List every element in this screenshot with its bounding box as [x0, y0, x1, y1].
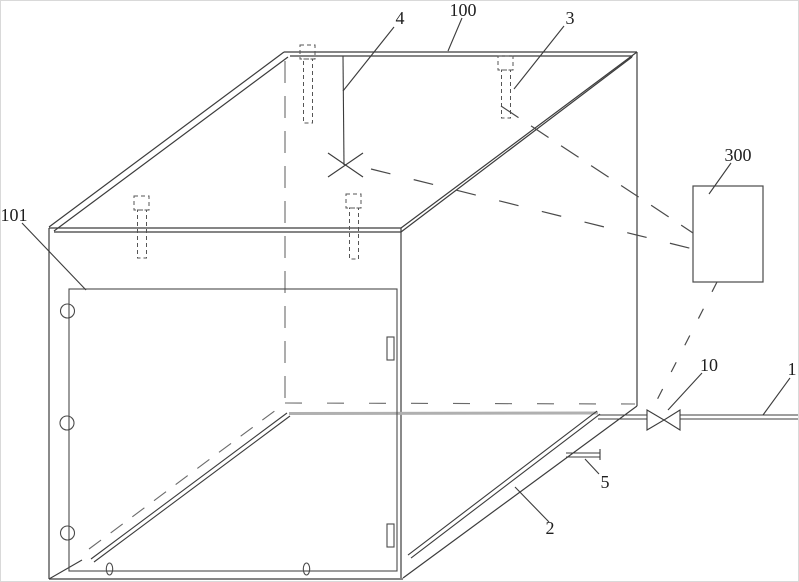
device-box	[693, 186, 763, 282]
label-4: 4	[396, 8, 405, 28]
hidden-bottom-back-edge	[285, 403, 635, 404]
label-10: 10	[700, 355, 718, 375]
leader-4	[343, 27, 394, 91]
floor-left-edge-inner	[94, 416, 290, 562]
bolt-head	[346, 194, 361, 208]
hinge-circle-bottom	[61, 526, 75, 540]
valve-icon-left-triangle	[647, 410, 664, 430]
top-left-edge-inner	[54, 57, 288, 231]
technical-drawing-figure: 4 100 3 101 300 10 1 5 2	[0, 0, 799, 582]
leader-300	[709, 163, 731, 194]
door-latch-top	[387, 337, 394, 360]
floor-front-left-joint	[49, 560, 82, 579]
leader-3	[514, 26, 564, 89]
floor-left-edge-outer	[91, 413, 287, 559]
label-100: 100	[450, 1, 477, 20]
leader-101	[22, 223, 86, 290]
bolt-head	[498, 56, 513, 70]
label-3: 3	[566, 8, 575, 28]
door-panel	[60, 289, 397, 575]
top-left-edge-outer	[49, 52, 284, 227]
sensor-bolt-back-left	[300, 45, 315, 123]
link-device-to-valve	[657, 282, 717, 400]
label-1: 1	[788, 359, 797, 379]
bolt-head	[134, 196, 149, 210]
label-5: 5	[601, 472, 610, 492]
leader-1	[763, 378, 790, 415]
sensor-bolts	[134, 45, 513, 259]
hidden-interior-edges	[89, 61, 635, 549]
bolt-shank	[304, 59, 313, 123]
bolt-shank	[138, 210, 147, 258]
leader-10	[668, 373, 702, 410]
figure-canvas: 4 100 3 101 300 10 1 5 2	[1, 1, 799, 582]
hinge-circle-middle	[60, 416, 74, 430]
top-right-edge-outer	[401, 52, 637, 228]
label-2: 2	[546, 518, 555, 538]
hinge-circle-top	[61, 304, 75, 318]
foot-ellipse-left	[106, 563, 112, 575]
chamber-shell	[49, 52, 637, 579]
label-101: 101	[1, 205, 28, 225]
leader-100	[448, 18, 462, 51]
hidden-bottom-left-slant-edge	[89, 404, 284, 549]
bottom-plate	[49, 411, 600, 579]
link-junction-to-device	[371, 169, 693, 249]
link-sensor-to-device	[501, 106, 693, 233]
leader-2	[515, 487, 549, 522]
sensor-bolt-front-left	[134, 196, 149, 258]
signal-links	[371, 106, 717, 400]
valve-icon-right-triangle	[664, 410, 680, 430]
hanging-wire	[343, 56, 344, 165]
wire-and-junction	[328, 56, 363, 177]
floor-right-edge-inner	[411, 414, 600, 558]
floor-right-edge-outer	[408, 411, 597, 555]
label-300: 300	[725, 145, 752, 165]
drain-pipe-assembly	[566, 410, 799, 460]
floor-back-edge	[289, 413, 598, 414]
leader-5	[585, 459, 599, 474]
reference-labels: 4 100 3 101 300 10 1 5 2	[1, 1, 797, 538]
door-panel-outline	[69, 289, 397, 571]
bolt-shank	[350, 208, 359, 259]
foot-ellipse-right	[303, 563, 309, 575]
sensor-bolt-front-center	[346, 194, 361, 259]
door-latch-bottom	[387, 524, 394, 547]
leader-lines	[22, 18, 790, 522]
